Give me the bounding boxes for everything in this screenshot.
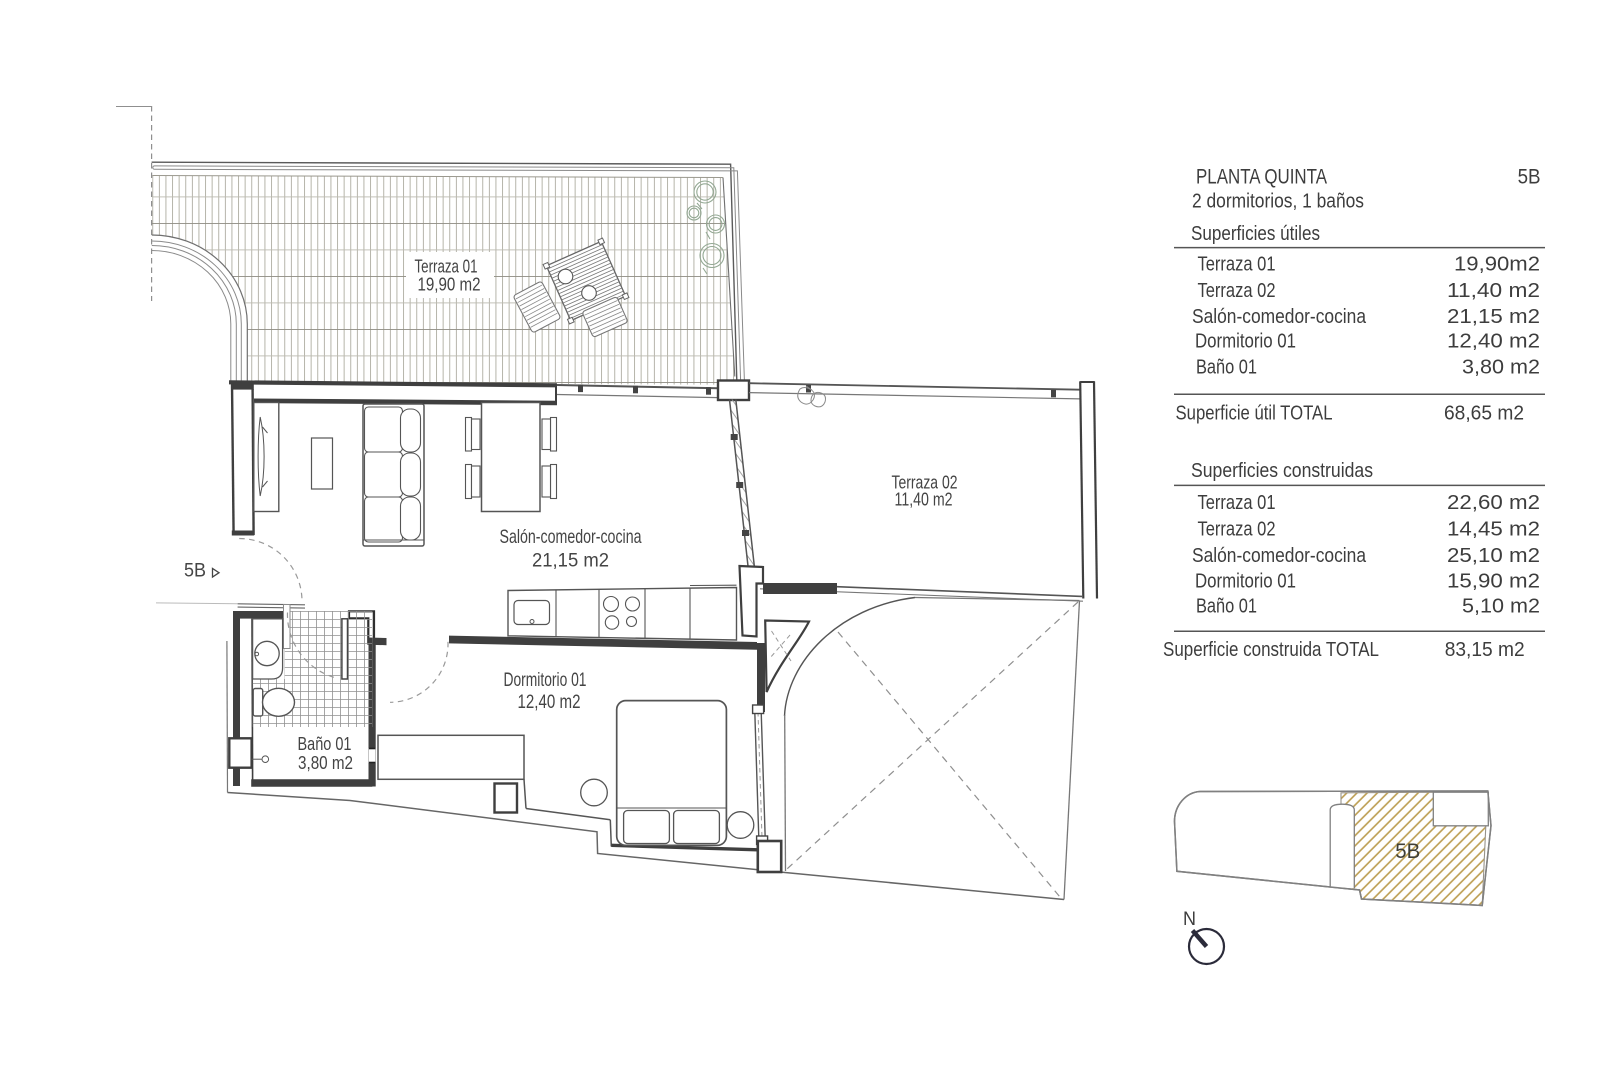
svg-text:Baño 01: Baño 01 <box>298 733 352 754</box>
svg-text:15,90 m2: 15,90 m2 <box>1447 570 1540 593</box>
svg-text:3,80 m2: 3,80 m2 <box>1462 356 1540 379</box>
svg-text:Salón-comedor-cocina: Salón-comedor-cocina <box>1192 305 1367 328</box>
svg-text:Salón-comedor-cocina: Salón-comedor-cocina <box>1192 544 1367 567</box>
svg-text:Superficies útiles: Superficies útiles <box>1191 222 1320 245</box>
svg-text:5,10 m2: 5,10 m2 <box>1462 595 1540 618</box>
svg-text:22,60 m2: 22,60 m2 <box>1447 491 1540 514</box>
svg-text:Terraza 02: Terraza 02 <box>1198 279 1276 302</box>
svg-text:Terraza 01: Terraza 01 <box>1198 491 1276 514</box>
svg-text:68,65 m2: 68,65 m2 <box>1444 402 1524 425</box>
svg-text:Baño 01: Baño 01 <box>1196 356 1257 379</box>
svg-text:Superficie útil TOTAL: Superficie útil TOTAL <box>1176 402 1333 425</box>
svg-text:Dormitorio 01: Dormitorio 01 <box>1195 330 1296 353</box>
svg-text:14,45 m2: 14,45 m2 <box>1447 518 1540 541</box>
svg-text:5B: 5B <box>1395 840 1420 863</box>
svg-text:Baño 01: Baño 01 <box>1196 595 1257 618</box>
svg-text:21,15 m2: 21,15 m2 <box>1447 305 1540 328</box>
svg-text:11,40 m2: 11,40 m2 <box>1447 279 1540 302</box>
svg-text:19,90 m2: 19,90 m2 <box>418 274 481 295</box>
svg-text:Terraza 02: Terraza 02 <box>1198 518 1276 541</box>
svg-text:Salón-comedor-cocina: Salón-comedor-cocina <box>500 526 642 548</box>
svg-text:2 dormitorios, 1 baños: 2 dormitorios, 1 baños <box>1192 190 1364 213</box>
svg-text:Dormitorio 01: Dormitorio 01 <box>1195 570 1296 593</box>
svg-text:25,10 m2: 25,10 m2 <box>1447 544 1540 567</box>
svg-text:Superficies construidas: Superficies construidas <box>1191 459 1373 482</box>
svg-text:3,80 m2: 3,80 m2 <box>298 752 353 773</box>
svg-text:5B: 5B <box>184 561 206 582</box>
svg-text:83,15 m2: 83,15 m2 <box>1445 638 1525 661</box>
svg-text:12,40 m2: 12,40 m2 <box>518 692 581 713</box>
svg-text:N: N <box>1183 909 1196 930</box>
svg-text:PLANTA QUINTA: PLANTA QUINTA <box>1196 165 1328 189</box>
svg-text:Superficie construida TOTAL: Superficie construida TOTAL <box>1163 638 1379 661</box>
svg-text:Dormitorio 01: Dormitorio 01 <box>504 670 587 691</box>
svg-text:5B: 5B <box>1518 165 1541 189</box>
svg-text:21,15 m2: 21,15 m2 <box>532 549 609 571</box>
svg-text:11,40 m2: 11,40 m2 <box>895 489 953 510</box>
svg-text:19,90m2: 19,90m2 <box>1454 253 1540 276</box>
svg-text:12,40 m2: 12,40 m2 <box>1447 330 1540 353</box>
svg-text:Terraza 01: Terraza 01 <box>1198 253 1276 276</box>
